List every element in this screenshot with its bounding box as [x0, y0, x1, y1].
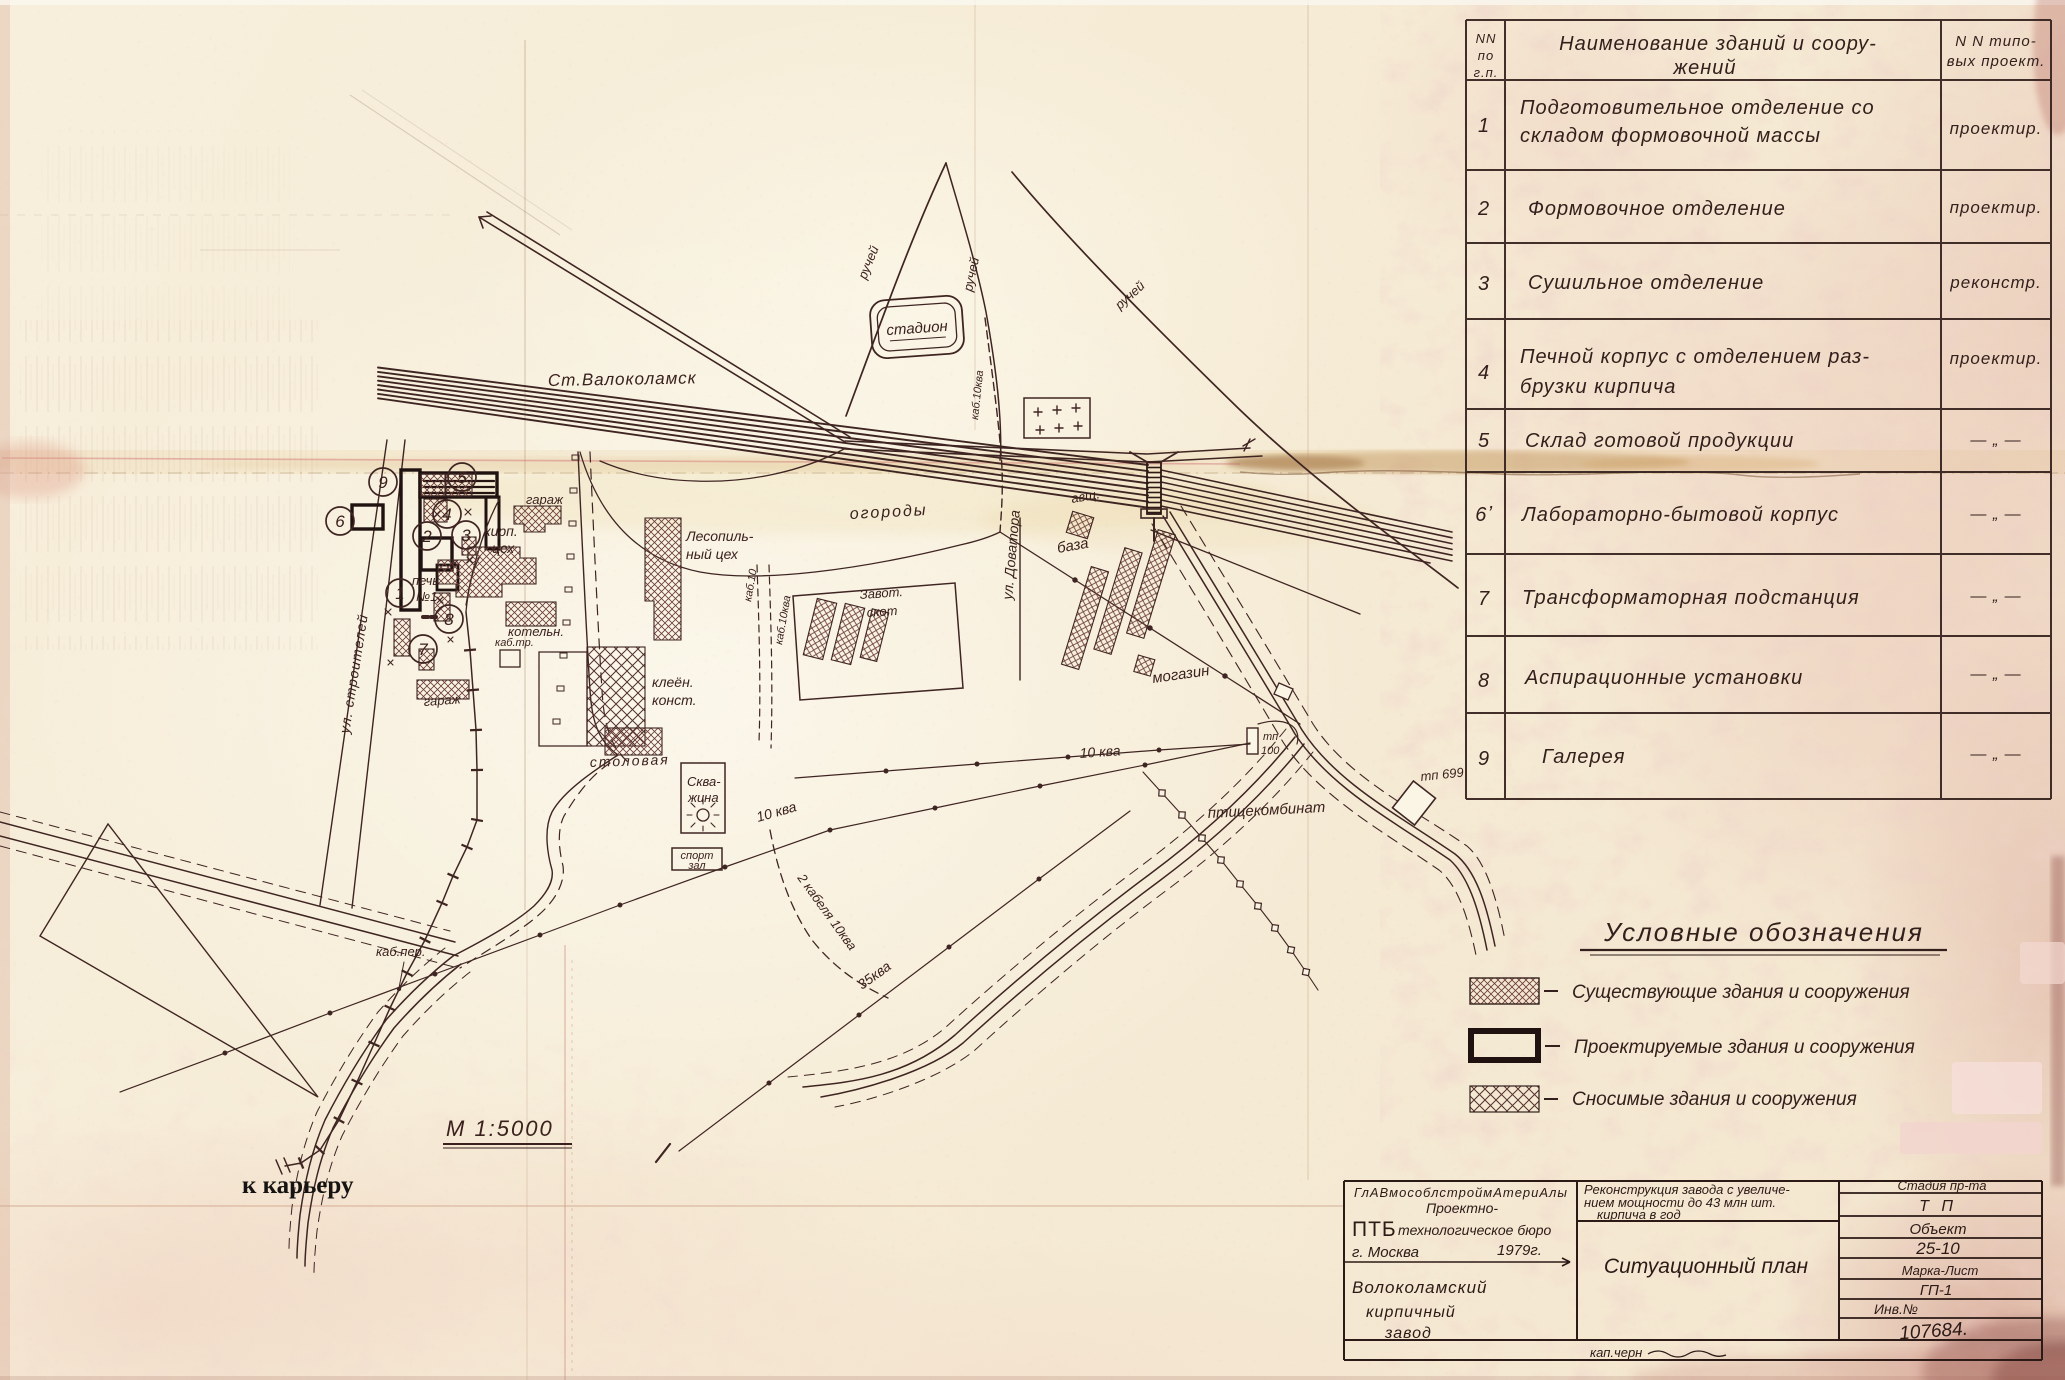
svg-text:NN: NN [1476, 31, 1497, 46]
svg-text:7: 7 [1478, 588, 1490, 610]
svg-text:ГП-1: ГП-1 [1920, 1282, 1952, 1299]
svg-text:Условные обозначения: Условные обозначения [1603, 917, 1924, 947]
svg-text:— „ —: — „ — [1969, 432, 2021, 449]
svg-text:завод: завод [1384, 1325, 1432, 1342]
svg-text:Существующие здания и сооруж: Существующие здания и сооружения [1572, 982, 1910, 1003]
svg-text:по: по [1478, 48, 1494, 63]
svg-text:№1: №1 [416, 589, 437, 604]
svg-text:брузки кирпича: брузки кирпича [1520, 376, 1676, 398]
svg-text:Печной корпус с отделением: Печной корпус с отделением раз- [1520, 346, 1870, 368]
svg-text:Проектно-: Проектно- [1426, 1200, 1498, 1216]
svg-text:5: 5 [1478, 430, 1490, 452]
svg-text:100: 100 [1261, 745, 1280, 757]
svg-text:проектир.: проектир. [1950, 198, 2043, 217]
svg-text:8: 8 [444, 610, 454, 629]
svg-text:ный цех: ный цех [686, 546, 739, 562]
svg-text:Формовочное отделение: Формовочное отделение [1528, 198, 1786, 220]
svg-text:Т П: Т П [1919, 1198, 1957, 1215]
svg-text:Стадия пр-та: Стадия пр-та [1898, 1178, 1987, 1193]
svg-text:жений: жений [1672, 57, 1736, 79]
svg-text:— „ —: — „ — [1969, 666, 2021, 683]
svg-text:каб.пер.: каб.пер. [376, 944, 426, 959]
svg-text:складом формовочной массы: складом формовочной массы [1520, 125, 1821, 147]
svg-text:5: 5 [457, 468, 467, 487]
svg-text:скот: скот [866, 603, 898, 620]
svg-text:2: 2 [421, 527, 432, 546]
svg-text:Аспирационные установки: Аспирационные установки [1524, 667, 1803, 689]
svg-text:зал: зал [687, 860, 705, 872]
svg-text:Ситуационный план: Ситуационный план [1604, 1255, 1809, 1278]
svg-text:к карьеру: к карьеру [242, 1172, 354, 1199]
svg-text:технологическое бюро: технологическое бюро [1398, 1222, 1552, 1238]
svg-text:кирпича в год: кирпича в год [1597, 1207, 1681, 1222]
svg-text:столовая: столовая [590, 751, 670, 770]
svg-text:Сушильное отделение: Сушильное отделение [1528, 272, 1764, 294]
svg-text:— „ —: — „ — [1969, 588, 2021, 605]
svg-text:г. Москва: г. Москва [1352, 1244, 1419, 1261]
svg-text:кап.черн: кап.черн [1590, 1345, 1642, 1360]
svg-text:Наименование зданий и соору: Наименование зданий и соору- [1559, 33, 1877, 55]
svg-text:Лесопиль-: Лесопиль- [685, 528, 754, 544]
svg-text:гараж: гараж [423, 691, 462, 709]
svg-text:6: 6 [335, 512, 345, 531]
svg-text:— „ —: — „ — [1969, 746, 2021, 763]
svg-text:ПТБ: ПТБ [1352, 1218, 1397, 1241]
svg-text:6ʼ: 6ʼ [1475, 504, 1493, 526]
svg-text:9: 9 [1478, 748, 1490, 770]
svg-text:1: 1 [1478, 115, 1490, 137]
svg-text:Завот.: Завот. [859, 584, 903, 602]
svg-text:реконстр.: реконстр. [1949, 273, 2041, 292]
svg-text:гараж: гараж [526, 492, 564, 507]
svg-text:9: 9 [378, 473, 388, 492]
svg-text:кирпичный: кирпичный [1366, 1304, 1456, 1321]
svg-text:Проектируемые здания и соор: Проектируемые здания и сооружения [1574, 1037, 1915, 1058]
svg-text:3: 3 [461, 526, 471, 545]
svg-text:клеён.: клеён. [652, 674, 694, 690]
svg-text:Объект: Объект [1909, 1221, 1966, 1238]
svg-text:цех: цех [492, 540, 515, 556]
svg-text:Волоколамский: Волоколамский [1352, 1278, 1488, 1297]
svg-text:Сносимые здания и сооружени: Сносимые здания и сооружения [1572, 1089, 1857, 1110]
svg-text:каб.тр.: каб.тр. [495, 637, 534, 649]
svg-text:Лабораторно-бытовой корпус: Лабораторно-бытовой корпус [1520, 504, 1839, 526]
svg-text:Марка-Лист: Марка-Лист [1902, 1263, 1979, 1278]
svg-text:жина: жина [687, 790, 719, 805]
svg-text:Галерея: Галерея [1542, 746, 1625, 768]
svg-text:тп: тп [1263, 731, 1278, 743]
svg-text:ГлАВмособлстроймАтериАлы: ГлАВмособлстроймАтериАлы [1354, 1185, 1568, 1200]
svg-text:Подготовительное отделение с: Подготовительное отделение со [1520, 97, 1875, 119]
svg-text:г.п.: г.п. [1474, 65, 1499, 80]
svg-text:3: 3 [1478, 273, 1490, 295]
svg-text:— „ —: — „ — [1969, 506, 2021, 523]
svg-text:Трансформаторная подстанция: Трансформаторная подстанция [1522, 587, 1860, 609]
svg-text:2: 2 [1477, 198, 1490, 220]
svg-text:проектир.: проектир. [1950, 119, 2043, 138]
svg-text:проектир.: проектир. [1950, 349, 2043, 368]
svg-text:4: 4 [442, 505, 451, 524]
svg-text:1: 1 [395, 584, 404, 603]
svg-text:Сква-: Сква- [687, 774, 721, 789]
svg-text:8: 8 [1478, 670, 1490, 692]
svg-text:25-10: 25-10 [1915, 1239, 1960, 1258]
svg-text:кирп.: кирп. [484, 523, 518, 539]
svg-text:Склад готовой продукции: Склад готовой продукции [1525, 430, 1794, 452]
svg-text:М 1:5000: М 1:5000 [446, 1116, 554, 1141]
svg-text:N N типо-: N N типо- [1955, 33, 2036, 50]
svg-text:1979г.: 1979г. [1497, 1242, 1542, 1259]
svg-text:4: 4 [1478, 362, 1490, 384]
svg-text:Инв.№: Инв.№ [1874, 1301, 1918, 1317]
svg-text:вых проект.: вых проект. [1947, 53, 2046, 70]
svg-text:печь: печь [412, 573, 439, 588]
svg-text:10 ква: 10 ква [1079, 742, 1121, 761]
svg-text:конст.: конст. [652, 692, 697, 708]
svg-text:Ст.Валоколамск: Ст.Валоколамск [548, 368, 697, 390]
svg-text:7: 7 [418, 640, 428, 659]
